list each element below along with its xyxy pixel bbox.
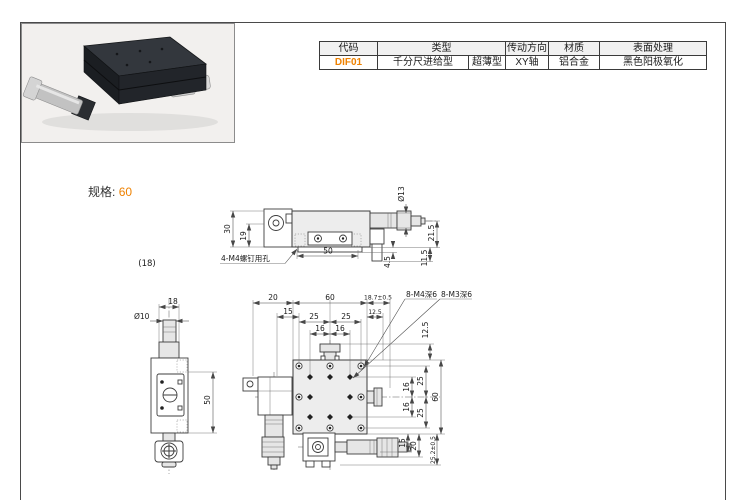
dim-label: 18.7±0.5	[364, 295, 392, 302]
dim-label: Ø13	[397, 186, 406, 202]
screw-hole-label: 4-M4螺钉用孔	[221, 253, 270, 263]
dim-label: 30	[223, 224, 232, 234]
dim-label: 60	[325, 293, 335, 302]
dim-label: 16	[335, 324, 345, 333]
technical-drawings: 30 19 Ø13 21.5 4.5 11.5 50 4-M4螺钉用孔 (18)	[0, 0, 750, 500]
dim-label: 25	[341, 312, 351, 321]
dim-label: 25	[416, 376, 425, 386]
m4-callout: 8-M4深6	[406, 290, 437, 299]
dim-label: 16	[315, 324, 325, 333]
dim-label: 16	[402, 382, 411, 392]
drawing-top-view: 20 60 18.7±0.5 15 12.5 25 25 16 16 8-M4深…	[243, 290, 472, 472]
dim-label: 15	[283, 307, 293, 316]
dim-label: 15	[398, 438, 407, 448]
dim-label: Ø10	[134, 312, 150, 321]
dim-label: 4.5	[383, 256, 392, 268]
dim-label: 19	[239, 231, 248, 241]
left-micrometer	[243, 377, 292, 469]
height-note: (18)	[138, 259, 155, 269]
dim-label: 50	[203, 395, 212, 405]
dim-label: 11.5	[420, 249, 429, 266]
stage-plate	[293, 360, 367, 434]
dim-label: 12.5	[421, 321, 430, 338]
dim-label: 60	[431, 392, 440, 402]
top-clamp	[320, 344, 340, 360]
drawing-front-view: 18 Ø10 50	[134, 297, 217, 474]
dim-label: 20	[268, 293, 278, 302]
dim-label: 18	[168, 297, 178, 306]
dim-label: 20	[409, 441, 418, 451]
dim-label: 21.5	[427, 224, 436, 241]
dim-label: 25	[309, 312, 319, 321]
dim-label: 25.2±0.5	[430, 436, 437, 464]
right-knob	[367, 388, 382, 406]
m3-callout: 8-M3深6	[441, 290, 472, 299]
dim-label: 12.5	[368, 309, 382, 316]
bottom-micrometer	[303, 433, 411, 467]
dim-label: 25	[416, 408, 425, 418]
dim-label: 50	[323, 247, 333, 256]
drawing-side-view: 30 19 Ø13 21.5 4.5 11.5 50 4-M4螺钉用孔	[220, 186, 440, 268]
dim-label: 16	[402, 402, 411, 412]
